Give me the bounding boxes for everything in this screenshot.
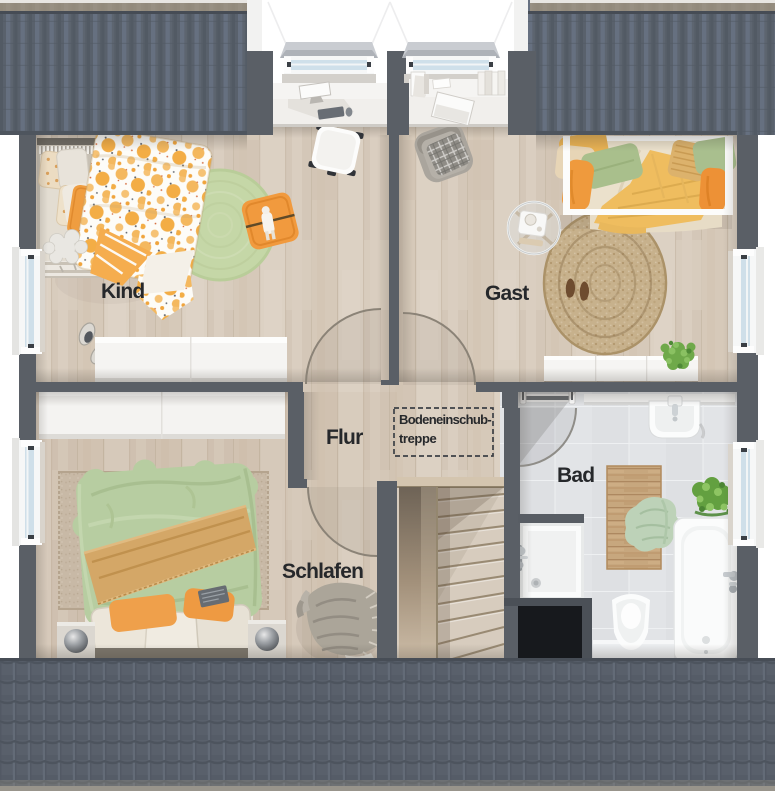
svg-text:Kind: Kind <box>101 280 144 303</box>
svg-text:Gast: Gast <box>485 282 529 305</box>
svg-text:treppe: treppe <box>399 431 437 446</box>
svg-text:Bad: Bad <box>557 464 594 487</box>
svg-text:Bodeneinschub-: Bodeneinschub- <box>399 412 491 427</box>
svg-text:Flur: Flur <box>326 426 363 449</box>
svg-text:Schlafen: Schlafen <box>282 560 363 583</box>
